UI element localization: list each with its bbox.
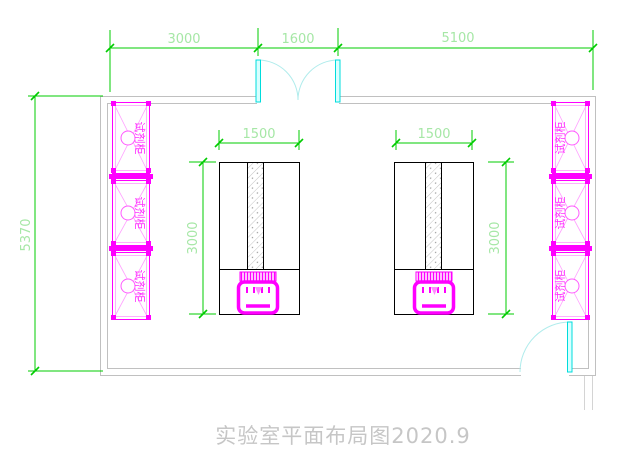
lab-bench-left (220, 163, 300, 315)
cabinet-divider (549, 174, 592, 179)
cabinet-label: 试剂柜 (553, 122, 567, 155)
cabinet-label: 试剂柜 (133, 122, 147, 155)
drawing-title: 实验室平面布局图2020.9 (215, 424, 470, 448)
reagent-cabinet: 试剂柜 (551, 251, 590, 320)
reagent-cabinet: 试剂柜 (551, 179, 590, 246)
floor-plan-canvas: 3000 1600 5100 5370 1500 (0, 0, 619, 469)
dim-left-label: 5370 (19, 218, 34, 251)
cabinet-label: 试剂柜 (133, 197, 147, 230)
reagent-cabinet: 试剂柜 (551, 101, 590, 174)
cabinet-divider (109, 246, 153, 251)
door-leaf-icon (568, 322, 573, 372)
lab-bench-right (395, 163, 474, 315)
cabinet-label: 试剂柜 (553, 270, 567, 303)
door-leaf-icon (256, 60, 261, 102)
cabinet-label: 试剂柜 (133, 270, 147, 303)
floor-plan-drawing: 3000 1600 5100 5370 1500 (0, 0, 619, 469)
bench-right-depth-label: 3000 (488, 221, 503, 254)
sink-icon (415, 272, 454, 313)
bench-hatch-strip (248, 163, 264, 270)
cabinet-divider (109, 174, 153, 179)
exterior-walls (101, 97, 596, 376)
bench-left-depth-label: 3000 (186, 221, 201, 254)
sink-icon (239, 272, 278, 313)
reagent-cabinet: 试剂柜 (111, 251, 151, 320)
dimension-left (28, 92, 103, 375)
wall-stub-lines (585, 376, 593, 410)
bottom-door-opening (521, 364, 569, 380)
reagent-cabinets-right: 试剂柜 试剂柜 试剂柜 (549, 101, 592, 320)
bench-left-width-label: 1500 (242, 127, 275, 142)
bench-hatch-strip (426, 163, 442, 270)
dim-top-left-label: 3000 (167, 32, 200, 47)
dim-top-right-label: 5100 (441, 31, 474, 46)
reagent-cabinet: 试剂柜 (111, 179, 151, 246)
reagent-cabinets-left: 试剂柜 试剂柜 试剂柜 (109, 101, 153, 320)
reagent-cabinet: 试剂柜 (111, 101, 151, 174)
cabinet-divider (549, 246, 592, 251)
dim-top-middle-label: 1600 (281, 32, 314, 47)
cabinet-label: 试剂柜 (553, 197, 567, 230)
bench-right-width-label: 1500 (417, 127, 450, 142)
door-leaf-icon (336, 60, 341, 102)
